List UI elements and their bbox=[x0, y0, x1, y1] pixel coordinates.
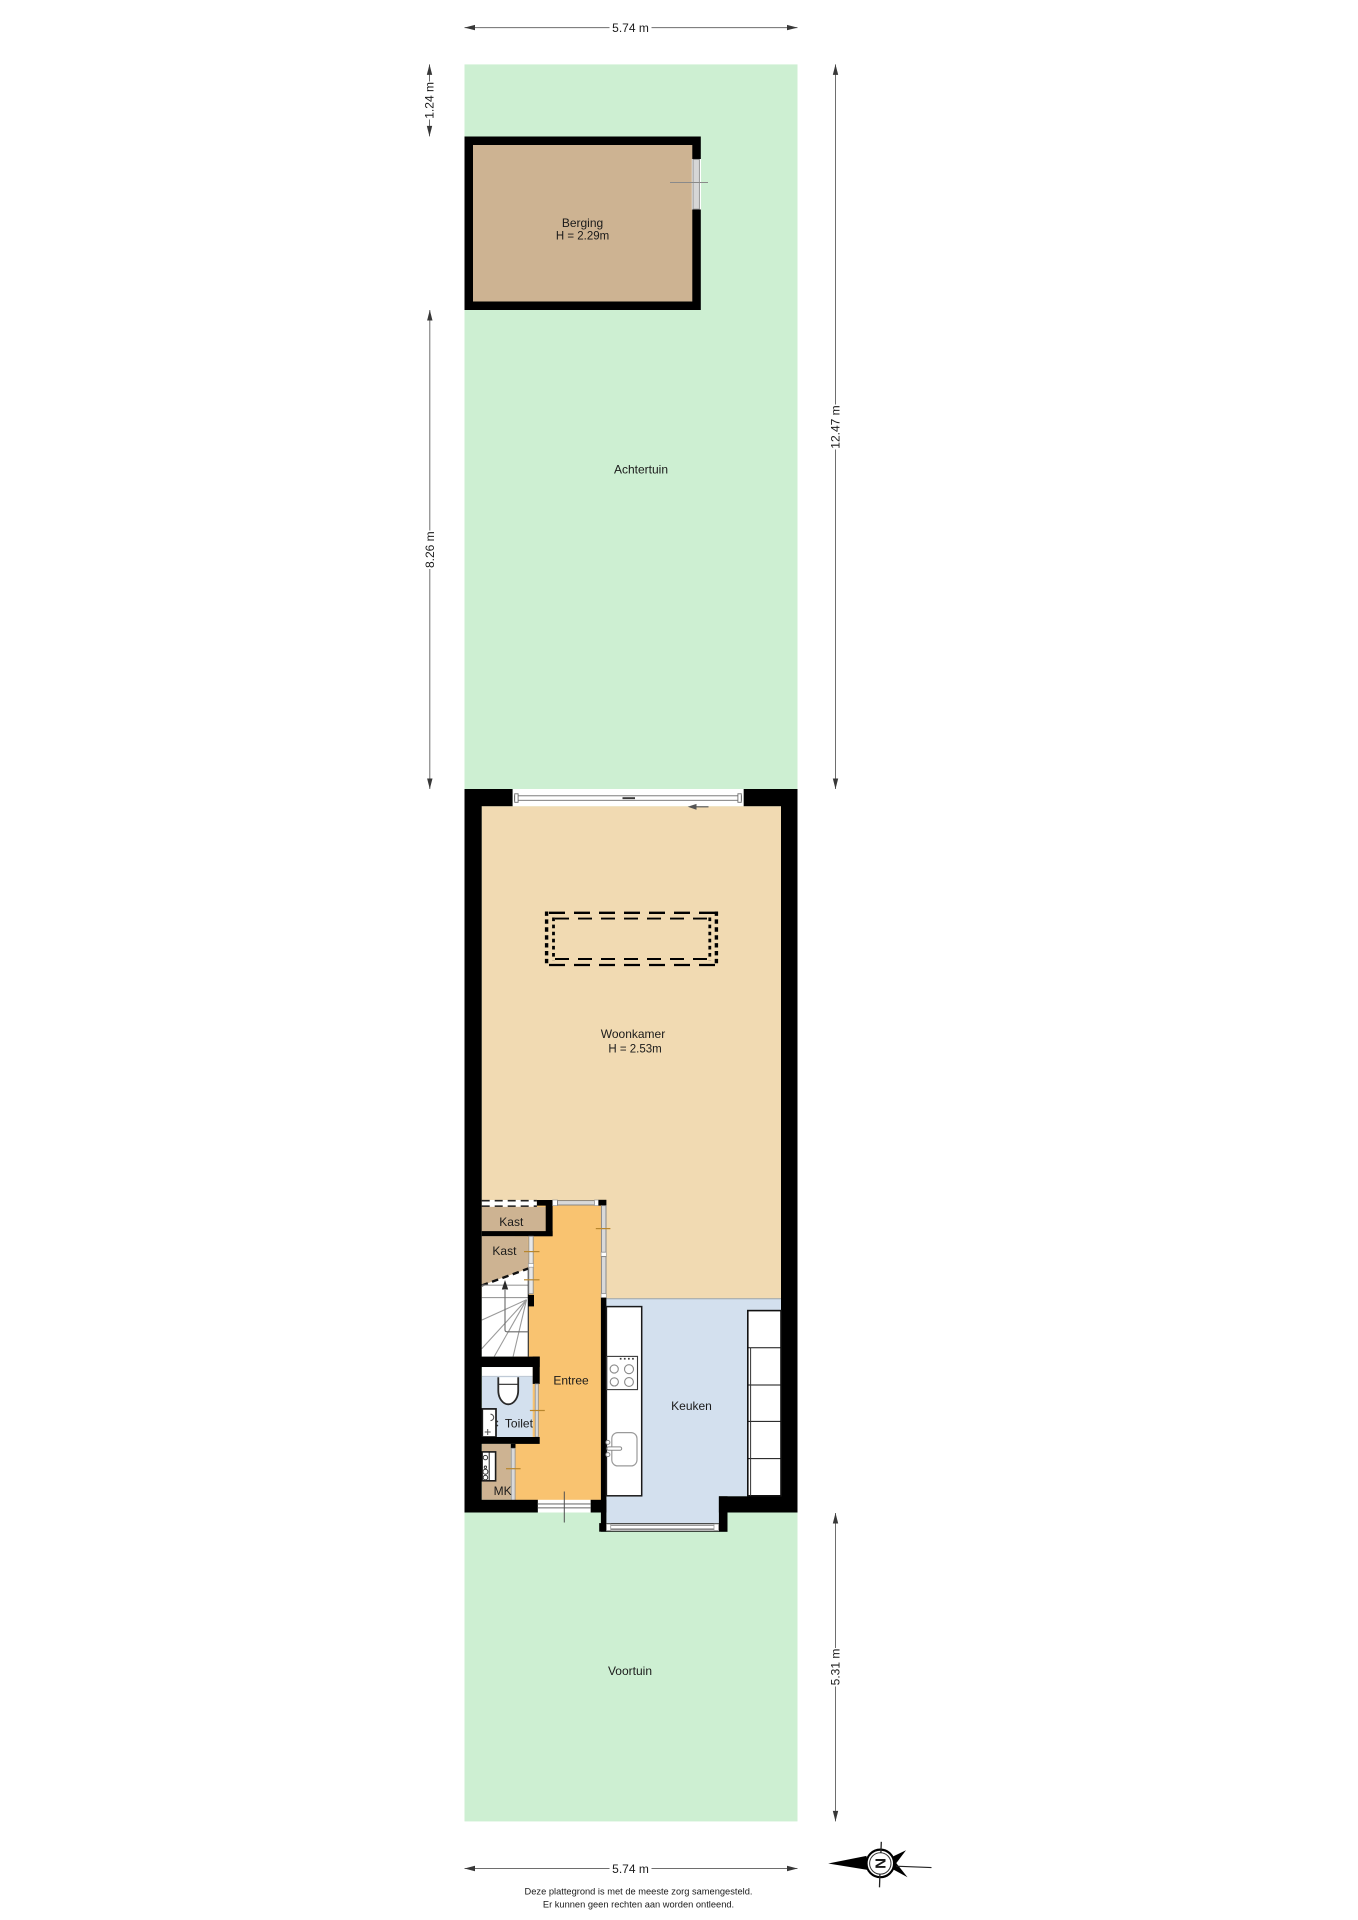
svg-text:H = 2.29m: H = 2.29m bbox=[556, 231, 609, 243]
svg-text:Kast: Kast bbox=[499, 1215, 524, 1229]
svg-text:Kast: Kast bbox=[492, 1244, 517, 1258]
svg-text:Entree: Entree bbox=[553, 1373, 589, 1387]
svg-text:8.26 m: 8.26 m bbox=[423, 531, 437, 568]
svg-text:5.74 m: 5.74 m bbox=[612, 1862, 649, 1876]
svg-text:5.74 m: 5.74 m bbox=[612, 21, 649, 35]
svg-text:Berging: Berging bbox=[562, 216, 603, 230]
svg-text:H = 2.53m: H = 2.53m bbox=[608, 1043, 661, 1055]
svg-text:Achtertuin: Achtertuin bbox=[614, 463, 668, 477]
svg-text:Toilet: Toilet bbox=[505, 1417, 534, 1431]
svg-text:MK: MK bbox=[494, 1484, 512, 1498]
svg-text:Woonkamer: Woonkamer bbox=[601, 1027, 665, 1041]
svg-text:Voortuin: Voortuin bbox=[608, 1664, 652, 1678]
svg-text:N: N bbox=[872, 1858, 889, 1869]
svg-text:Er kunnen geen rechten aan wor: Er kunnen geen rechten aan worden ontlee… bbox=[543, 1900, 734, 1910]
svg-text:Deze plattegrond is met de mee: Deze plattegrond is met de meeste zorg s… bbox=[525, 1887, 753, 1897]
svg-text:12.47 m: 12.47 m bbox=[829, 405, 843, 448]
svg-text:1.24 m: 1.24 m bbox=[423, 82, 437, 119]
svg-text:Keuken: Keuken bbox=[671, 1399, 712, 1413]
svg-text:5.31 m: 5.31 m bbox=[829, 1649, 843, 1686]
